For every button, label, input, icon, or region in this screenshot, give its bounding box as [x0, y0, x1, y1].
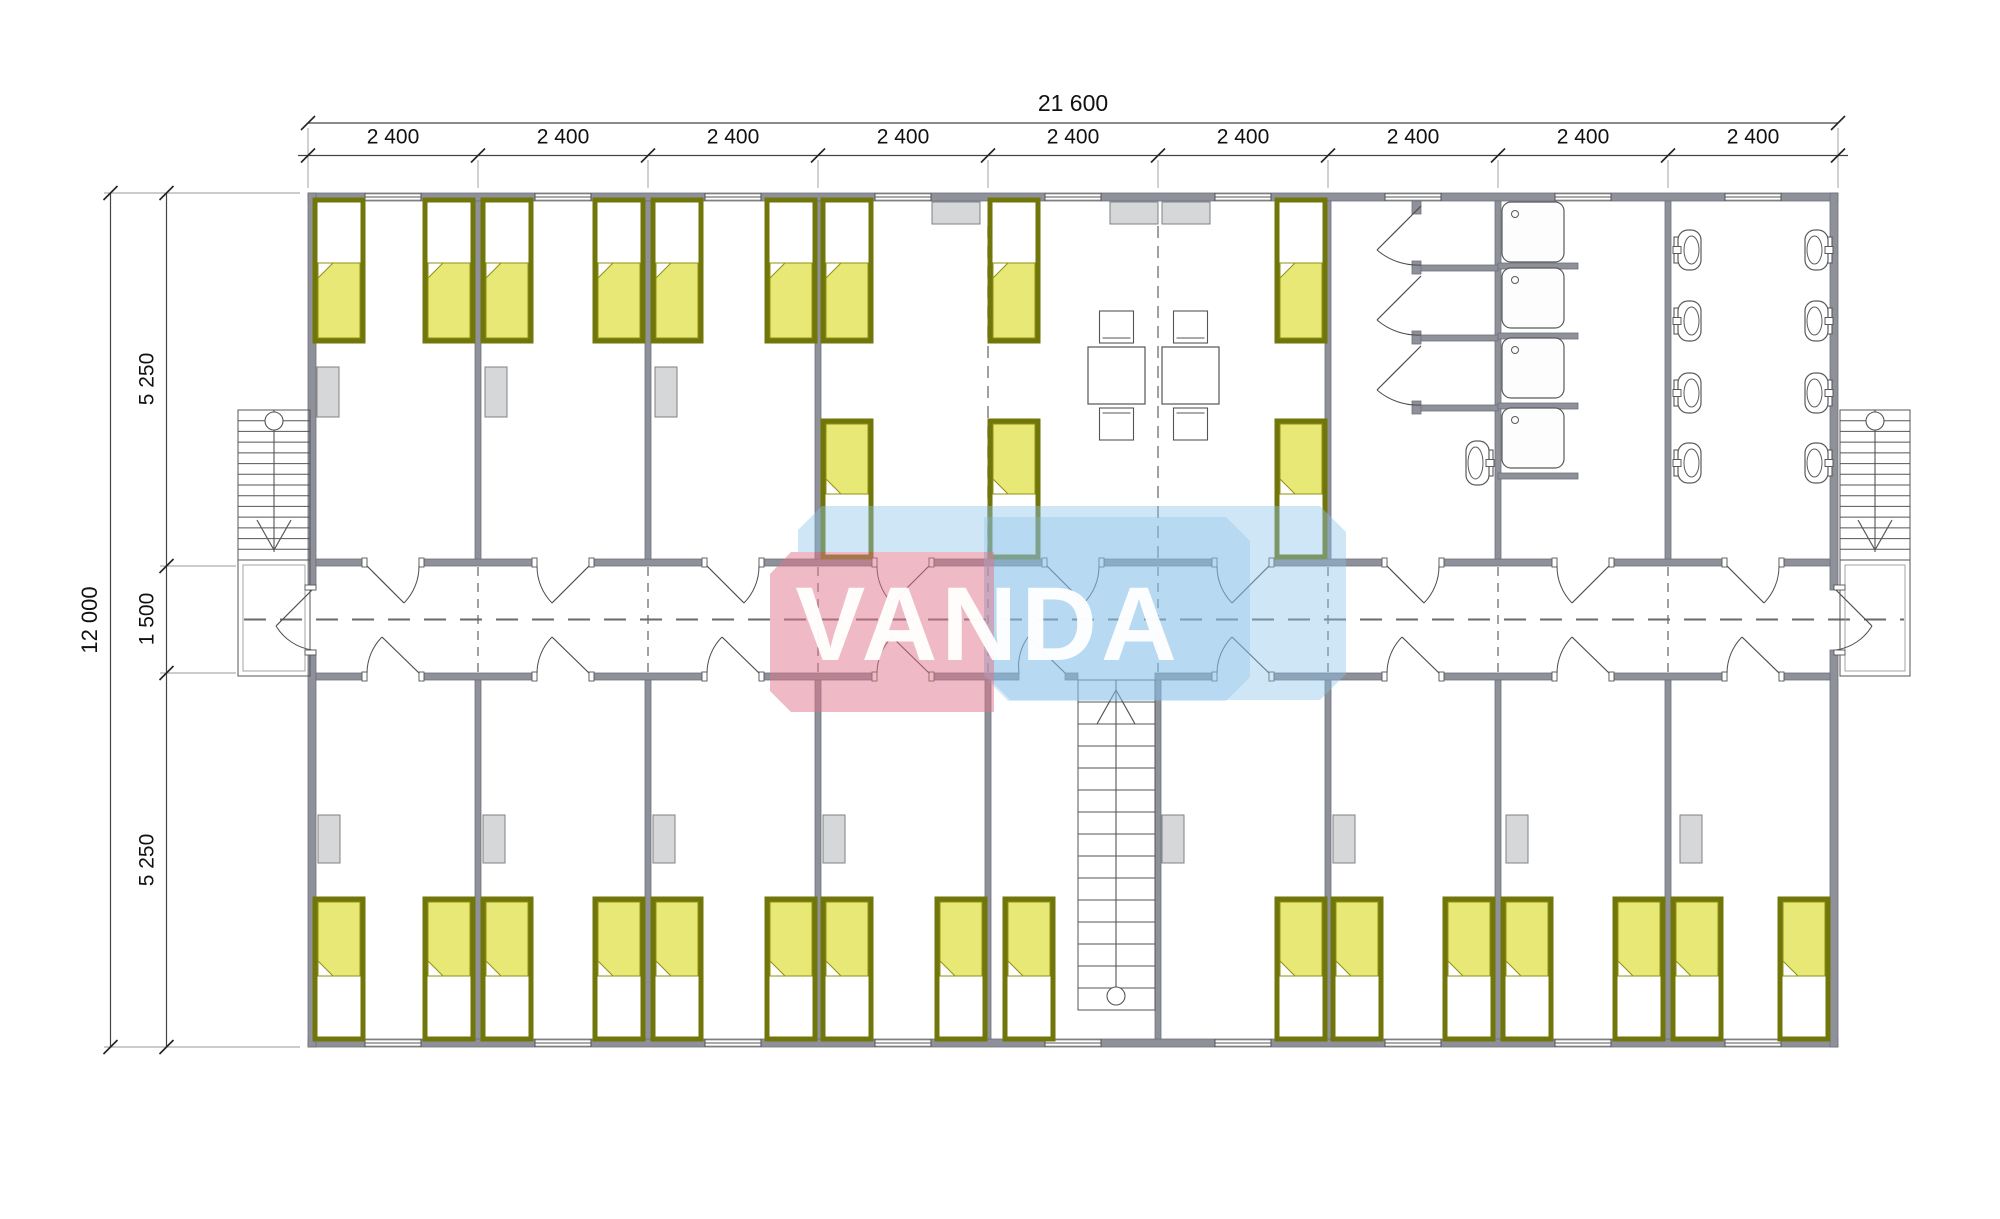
shower-tray: [1502, 202, 1564, 262]
staircase: [238, 410, 310, 560]
dimension-label: 2 400: [537, 126, 590, 149]
bed: [990, 200, 1038, 341]
door-jamb-cap: [589, 672, 594, 681]
wardrobe: [485, 367, 507, 417]
shower-tray: [1502, 268, 1564, 328]
door-swing-arc: [537, 637, 552, 673]
toilet: [1466, 441, 1494, 485]
door-leaf: [276, 590, 312, 626]
window: [1215, 193, 1271, 201]
wardrobe: [1333, 815, 1355, 863]
corridor-wall: [589, 559, 707, 566]
dimension-label: 2 400: [1557, 126, 1610, 149]
door-jamb-cap: [1439, 558, 1444, 567]
dimension-label: 2 400: [707, 126, 760, 149]
shower-stall-wall: [1420, 335, 1498, 341]
shower-stall-wall: [1420, 405, 1498, 411]
door: [707, 566, 759, 603]
door-jamb-cap: [1382, 672, 1387, 681]
wardrobe: [823, 815, 845, 863]
wardrobe: [1162, 202, 1210, 224]
stair-arrow: [1875, 520, 1892, 550]
door-jamb-cap: [1439, 672, 1444, 681]
dimension-label: 2 400: [1727, 126, 1780, 149]
dimension-label: 12 000: [77, 586, 102, 653]
toilet-valve: [1825, 247, 1833, 254]
door-swing-arc: [1727, 637, 1742, 673]
window: [1385, 193, 1441, 201]
partition-wall: [475, 680, 481, 1039]
stair-start-circle: [265, 412, 283, 430]
window: [1555, 1039, 1611, 1047]
door-jamb-cap: [759, 672, 764, 681]
door-leaf: [1402, 637, 1439, 673]
window: [1045, 193, 1101, 201]
window: [875, 193, 931, 201]
bed: [1333, 899, 1381, 1039]
door-jamb-cap: [1722, 672, 1727, 681]
bed: [595, 200, 643, 341]
window: [1215, 1039, 1271, 1047]
window: [1725, 193, 1781, 201]
door-swing-arc: [404, 566, 419, 603]
door: [537, 566, 589, 603]
bed: [315, 200, 363, 341]
shower-tray: [1502, 338, 1564, 398]
door-jamb-cap: [305, 650, 316, 655]
bed: [767, 899, 815, 1039]
door-leaf: [367, 566, 404, 603]
dimension-label: 21 600: [1038, 90, 1108, 116]
door-jamb-cap: [1382, 558, 1387, 567]
door: [537, 637, 589, 673]
door-jamb-cap: [532, 672, 537, 681]
bed: [425, 200, 473, 341]
bed: [1277, 899, 1325, 1039]
entrance-landing: [1840, 560, 1910, 676]
corridor-wall: [419, 559, 537, 566]
door-jamb-cap: [702, 558, 707, 567]
wardrobe: [1162, 815, 1184, 863]
wardrobe: [932, 202, 980, 224]
stair-arrow: [257, 520, 274, 550]
toilet-valve: [1673, 318, 1681, 325]
bed: [1780, 899, 1828, 1039]
dimension-label: 5 250: [136, 353, 159, 406]
bed: [1503, 899, 1551, 1039]
window: [1385, 1039, 1441, 1047]
bed: [653, 899, 701, 1039]
door: [1727, 566, 1779, 603]
bed: [823, 899, 871, 1039]
door-leaf: [1377, 206, 1421, 250]
toilet: [1673, 443, 1701, 483]
corridor-wall: [1439, 673, 1557, 680]
door: [1727, 637, 1779, 673]
toilet-valve: [1486, 460, 1494, 467]
window: [535, 1039, 591, 1047]
shower-stall-wall: [1420, 265, 1498, 271]
door: [707, 637, 759, 673]
wardrobe: [483, 815, 505, 863]
table: [1162, 347, 1219, 404]
door-leaf: [1727, 566, 1764, 603]
door-jamb-cap: [1609, 558, 1614, 567]
corridor-wall: [1609, 559, 1727, 566]
bed: [1445, 899, 1493, 1039]
door-leaf: [1572, 637, 1609, 673]
door-jamb-cap: [419, 672, 424, 681]
bed: [483, 899, 531, 1039]
partition-wall: [645, 680, 651, 1039]
door-leaf: [1742, 637, 1779, 673]
bed: [1615, 899, 1663, 1039]
floor-plan-drawing: VANDA21 6002 4002 4002 4002 4002 4002 40…: [0, 0, 2000, 1219]
partition-wall: [645, 201, 651, 559]
door-jamb-cap: [1722, 558, 1727, 567]
partition-wall: [1665, 201, 1671, 559]
door-jamb-cap: [362, 558, 367, 567]
door-leaf: [707, 566, 744, 603]
door-swing-arc: [1836, 626, 1872, 650]
corridor-wall: [1779, 673, 1830, 680]
bed: [595, 899, 643, 1039]
door-jamb-cap: [589, 558, 594, 567]
wardrobe: [653, 815, 675, 863]
dimension-label: 2 400: [877, 126, 930, 149]
door-jamb-cap: [1609, 672, 1614, 681]
toilet: [1805, 301, 1833, 341]
door-swing-arc: [1557, 637, 1572, 673]
toilet: [1673, 301, 1701, 341]
bed: [767, 200, 815, 341]
door: [1387, 637, 1439, 673]
dimension-label: 2 400: [1387, 126, 1440, 149]
corridor-wall: [589, 673, 707, 680]
dimension-label: 1 500: [136, 593, 159, 646]
door-leaf: [1387, 566, 1424, 603]
corridor-wall: [1779, 559, 1830, 566]
wardrobe: [1506, 815, 1528, 863]
door: [1377, 346, 1421, 405]
door-jamb-cap: [419, 558, 424, 567]
window: [705, 1039, 761, 1047]
bed: [937, 899, 985, 1039]
door-swing-arc: [1764, 566, 1779, 603]
door-jamb-cap: [1779, 558, 1784, 567]
door: [367, 637, 419, 673]
door-swing-arc: [707, 637, 722, 673]
bed: [483, 200, 531, 341]
door: [1387, 566, 1439, 603]
wardrobe: [317, 367, 339, 417]
door: [1377, 276, 1421, 335]
door-leaf: [1377, 346, 1421, 390]
toilet-valve: [1673, 390, 1681, 397]
toilet: [1805, 443, 1833, 483]
window: [1555, 193, 1611, 201]
door-swing-arc: [1557, 566, 1572, 603]
wardrobe: [1110, 202, 1158, 224]
table-with-chairs: [1088, 311, 1145, 440]
stair-arrow: [274, 520, 291, 550]
wardrobe: [1680, 815, 1702, 863]
wardrobe: [655, 367, 677, 417]
door-swing-arc: [367, 637, 382, 673]
bed: [315, 899, 363, 1039]
door-hinge-post: [1412, 331, 1421, 344]
door: [367, 566, 419, 603]
corridor-wall: [316, 559, 367, 566]
door-jamb-cap: [305, 585, 316, 590]
door-jamb-cap: [1552, 672, 1557, 681]
window: [365, 193, 421, 201]
partition-wall: [1495, 201, 1501, 559]
toilet-valve: [1673, 247, 1681, 254]
door-leaf: [382, 637, 419, 673]
door-hinge-post: [1412, 261, 1421, 274]
door-jamb-cap: [532, 558, 537, 567]
door: [1557, 566, 1609, 603]
exterior-wall-right: [1830, 650, 1838, 1047]
corridor-wall: [419, 673, 537, 680]
floor-plan-page: VANDA21 6002 4002 4002 4002 4002 4002 40…: [0, 0, 2000, 1219]
door-leaf: [1377, 276, 1421, 320]
window: [535, 193, 591, 201]
staircase: [1078, 680, 1155, 1010]
door: [1557, 637, 1609, 673]
watermark: VANDA: [770, 506, 1346, 712]
door-swing-arc: [744, 566, 759, 603]
toilet-valve: [1825, 460, 1833, 467]
window: [875, 1039, 931, 1047]
bed: [823, 200, 871, 341]
dimension-label: 5 250: [136, 834, 159, 887]
bed: [1673, 899, 1721, 1039]
door-jamb-cap: [1552, 558, 1557, 567]
staircase: [1840, 410, 1910, 560]
bed: [653, 200, 701, 341]
table-with-chairs: [1162, 311, 1219, 440]
watermark-text: VANDA: [795, 566, 1181, 683]
door: [1377, 206, 1421, 265]
partition-wall: [1155, 680, 1161, 1039]
bed: [1005, 899, 1053, 1039]
window: [1725, 1039, 1781, 1047]
door-leaf: [552, 637, 589, 673]
toilet-valve: [1825, 318, 1833, 325]
shower-tray: [1502, 408, 1564, 468]
door-leaf: [1572, 566, 1609, 603]
stair-start-circle: [1866, 412, 1884, 430]
toilet: [1805, 373, 1833, 413]
stair-arrow: [1858, 520, 1875, 550]
door-jamb-cap: [702, 672, 707, 681]
dimension-label: 2 400: [1047, 126, 1100, 149]
door-swing-arc: [537, 566, 552, 603]
partition-wall: [1495, 680, 1501, 1039]
door-jamb-cap: [759, 558, 764, 567]
entrance-landing: [238, 560, 310, 676]
corridor-wall: [316, 673, 367, 680]
window: [705, 193, 761, 201]
door-swing-arc: [276, 626, 312, 650]
door-jamb-cap: [362, 672, 367, 681]
toilet: [1673, 373, 1701, 413]
door-jamb-cap: [1779, 672, 1784, 681]
corridor-wall: [1439, 559, 1557, 566]
stair-start-circle: [1107, 987, 1125, 1005]
door-swing-arc: [1387, 637, 1402, 673]
toilet: [1805, 230, 1833, 270]
door-hinge-post: [1412, 401, 1421, 414]
door-leaf: [722, 637, 759, 673]
door-jamb-cap: [1834, 650, 1845, 655]
dimension-label: 2 400: [367, 126, 420, 149]
toilet: [1673, 230, 1701, 270]
window: [365, 1039, 421, 1047]
shower-separator-wall: [1498, 473, 1578, 479]
door-swing-arc: [1424, 566, 1439, 603]
partition-wall: [1665, 680, 1671, 1039]
bed: [425, 899, 473, 1039]
table: [1088, 347, 1145, 404]
door-jamb-cap: [1834, 585, 1845, 590]
bed: [1277, 200, 1325, 341]
toilet-valve: [1825, 390, 1833, 397]
door-leaf: [552, 566, 589, 603]
wardrobe: [318, 815, 340, 863]
toilet-valve: [1673, 460, 1681, 467]
corridor-wall: [1609, 673, 1727, 680]
partition-wall: [475, 201, 481, 559]
door-leaf: [1836, 590, 1872, 626]
dimension-label: 2 400: [1217, 126, 1270, 149]
